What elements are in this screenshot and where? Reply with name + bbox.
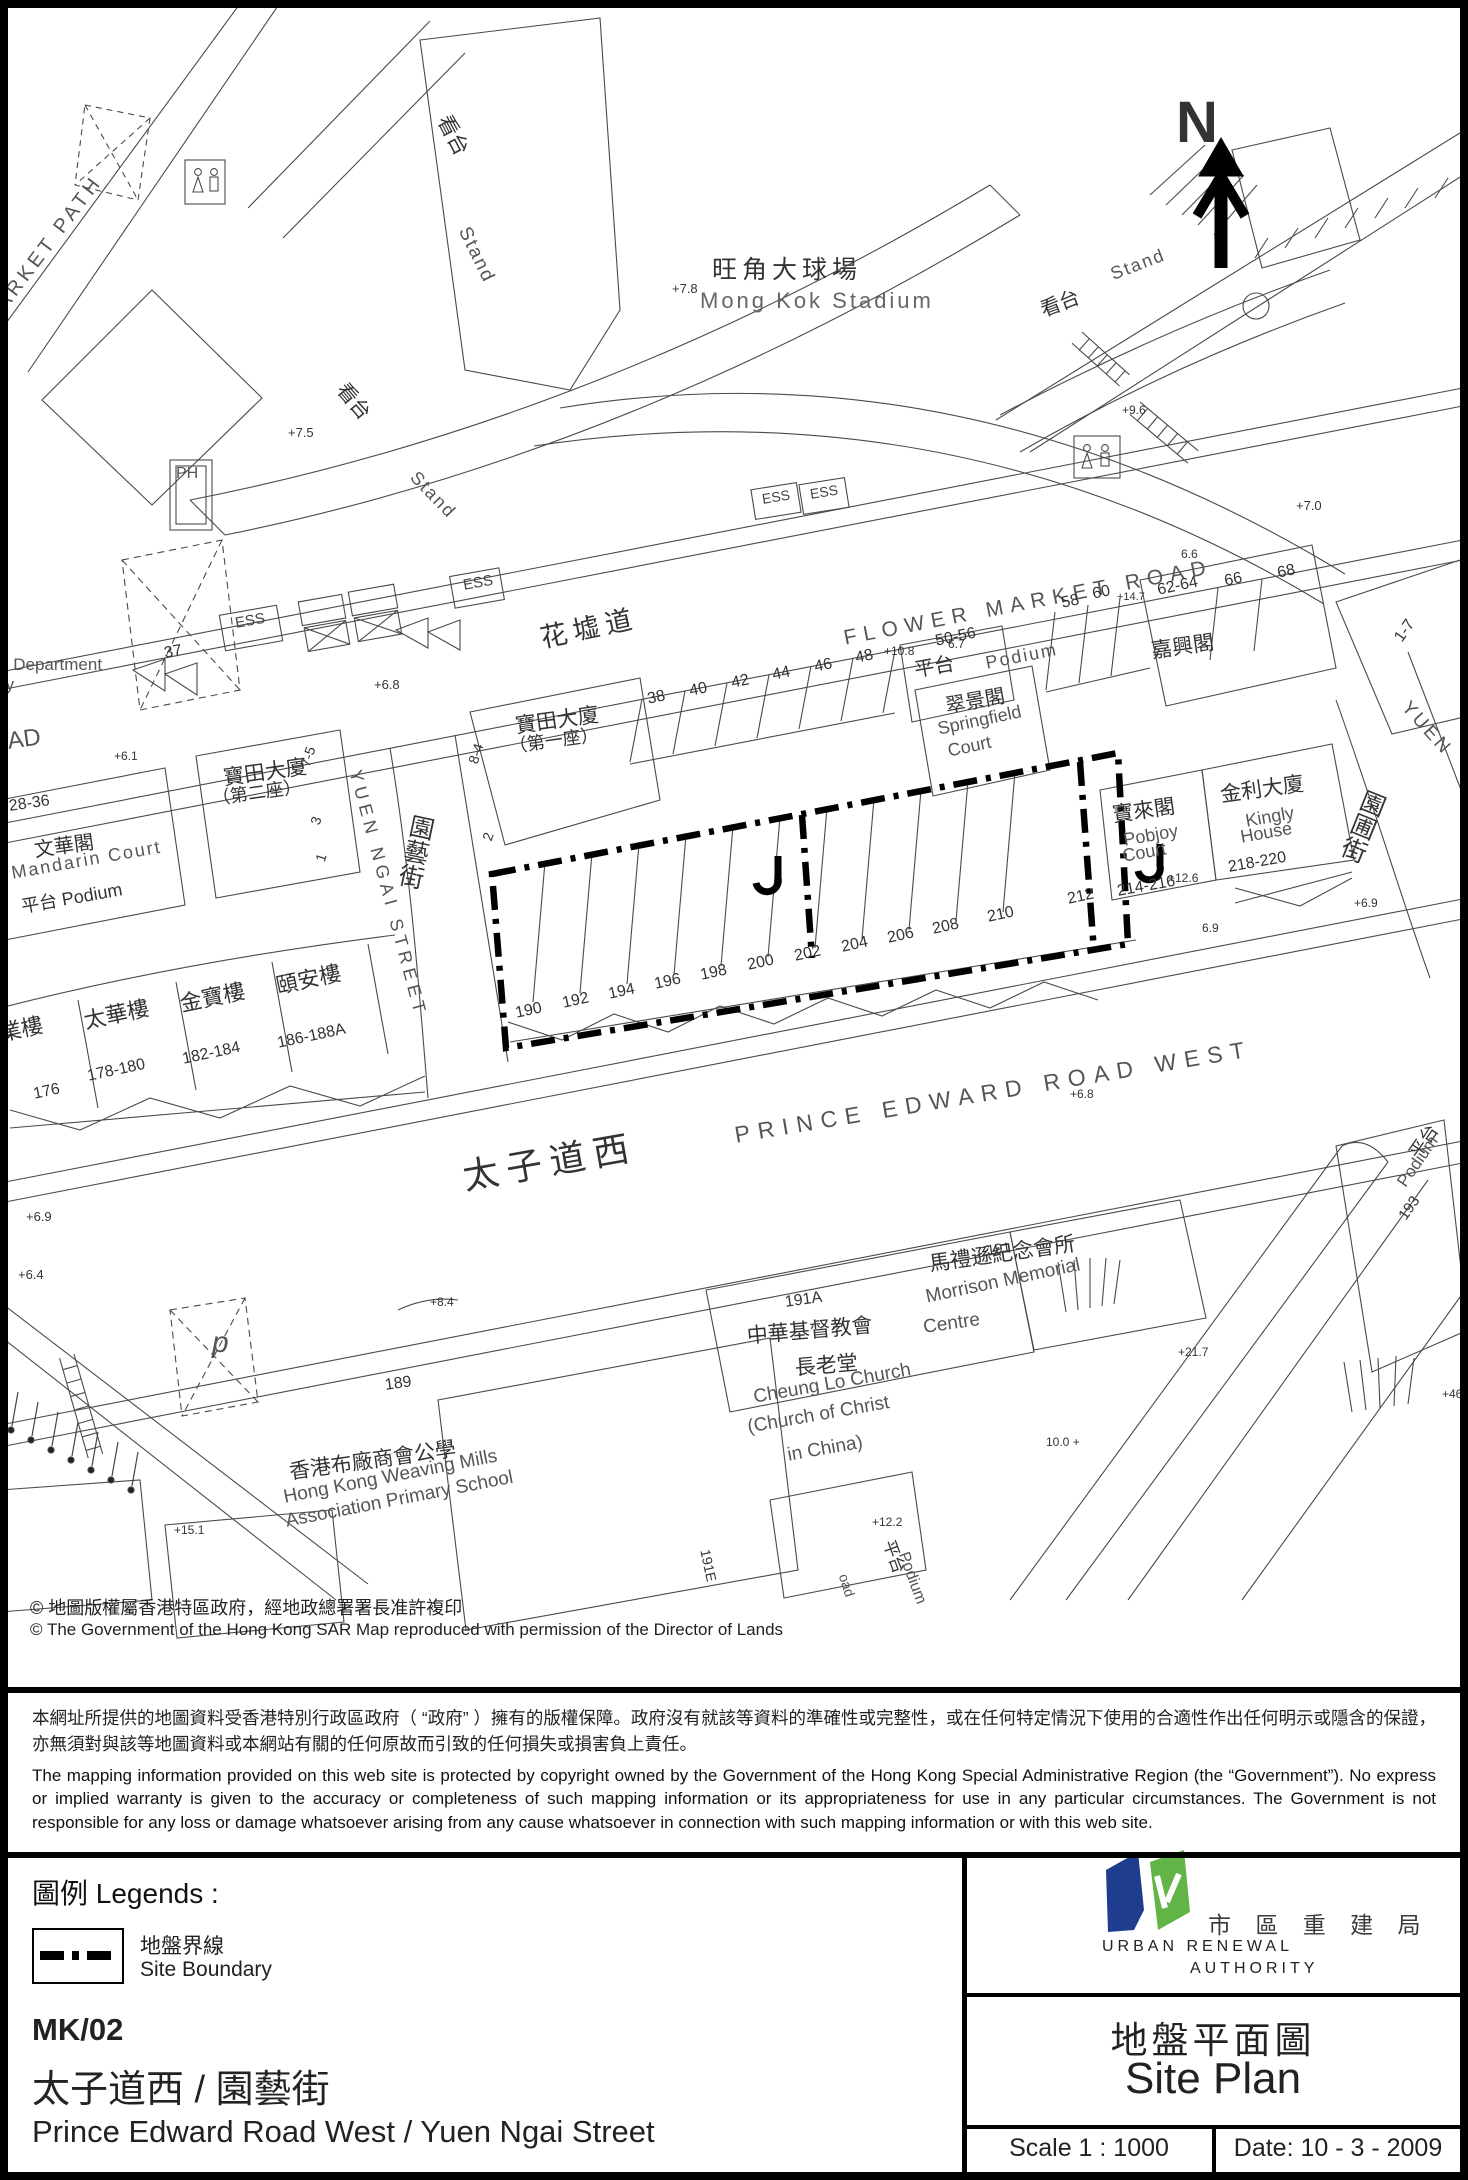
north-letter: N bbox=[1176, 94, 1218, 152]
spot-height: +15.1 bbox=[174, 1524, 204, 1536]
section-divider bbox=[8, 1687, 1460, 1693]
spot-height: +10.8 bbox=[884, 645, 914, 657]
building-outline bbox=[0, 1480, 152, 1612]
ura-name-en-line2: AUTHORITY bbox=[1190, 1960, 1318, 1978]
spot-height: +14.7 bbox=[1117, 592, 1145, 603]
lot-number: 37 bbox=[163, 643, 183, 662]
spot-height: +21.7 bbox=[1178, 1346, 1208, 1358]
legends-title: 圖例 Legends : bbox=[32, 1872, 219, 1912]
toilet-icon bbox=[1074, 436, 1120, 478]
department-label: s Department bbox=[0, 656, 102, 673]
spot-height: +12.2 bbox=[872, 1516, 902, 1528]
plan-type-en: Site Plan bbox=[966, 2054, 1460, 2104]
site-boundary bbox=[492, 753, 1160, 1048]
ura-name-zh: 市 區 重 建 局 bbox=[1208, 1906, 1430, 1940]
slope-hatch bbox=[1344, 1356, 1414, 1412]
building-outline bbox=[1336, 1120, 1468, 1372]
site-title-zh: 太子道西 / 園藝街 bbox=[32, 2058, 330, 2113]
spot-height: +7.0 bbox=[1296, 499, 1322, 512]
copyright-zh: © 地圖版權屬香港特區政府，經地政總署署長准許複印 bbox=[30, 1594, 462, 1620]
pavement-hatch bbox=[10, 1076, 425, 1130]
crosswalk bbox=[1072, 332, 1130, 386]
spot-height: +6.8 bbox=[374, 678, 400, 691]
copyright-en: © The Government of the Hong Kong SAR Ma… bbox=[30, 1620, 783, 1640]
spot-height: +6.9 bbox=[1354, 897, 1378, 909]
disclaimer: 本網址所提供的地圖資料受香港特別行政區政府（ “政府” ）擁有的版權保障。政府沒… bbox=[8, 1693, 1460, 1852]
disclaimer-zh: 本網址所提供的地圖資料受香港特別行政區政府（ “政府” ）擁有的版權保障。政府沒… bbox=[32, 1705, 1436, 1758]
ess-label: ESS bbox=[809, 483, 839, 501]
ess-label: ESS bbox=[761, 488, 791, 506]
spot-height: +12.6 bbox=[1168, 872, 1198, 884]
site-boundary-legend-icon bbox=[32, 1928, 124, 1984]
building-partitions bbox=[1046, 598, 1150, 692]
building-outline bbox=[470, 678, 660, 845]
tree-symbols bbox=[8, 1392, 138, 1493]
stadium-name-zh: 旺角大球場 bbox=[712, 258, 862, 283]
date-value: Date: 10 - 3 - 2009 bbox=[1216, 2134, 1460, 2163]
building-outline bbox=[196, 730, 360, 898]
spot-height: +6.8 bbox=[1070, 1088, 1094, 1100]
spot-height: +6.9 bbox=[26, 1210, 52, 1223]
spot-height: +9.6 bbox=[1122, 404, 1146, 416]
department-label: ry bbox=[0, 676, 14, 693]
building-outline bbox=[1232, 128, 1360, 268]
road-flower-market-path bbox=[0, 0, 465, 372]
legend-boundary-zh: 地盤界線 bbox=[140, 1930, 224, 1960]
disclaimer-en: The mapping information provided on this… bbox=[32, 1764, 1436, 1835]
spot-height: 6.9 bbox=[1202, 922, 1219, 934]
section-divider bbox=[8, 1852, 1460, 1858]
road-prince-edward-west bbox=[0, 898, 1468, 1447]
building-outline bbox=[42, 290, 262, 505]
ura-name-en-line1: URBAN RENEWAL bbox=[1102, 1938, 1293, 1956]
plan-code: MK/02 bbox=[32, 2012, 123, 2048]
parking-symbol: p bbox=[212, 1328, 229, 1358]
spot-height: 10.0 + bbox=[1046, 1436, 1080, 1448]
road-bottom-left bbox=[0, 1302, 368, 1600]
north-arrow bbox=[1197, 138, 1245, 268]
scale-date-divider bbox=[1212, 2125, 1216, 2172]
site-plan-map: MARKET PATH看台Stand+7.8旺角大球場Mong Kok Stad… bbox=[0, 0, 1468, 1687]
spot-height: +6.4 bbox=[18, 1268, 44, 1281]
ph-label: PH bbox=[176, 466, 198, 482]
toilet-icon bbox=[185, 160, 225, 204]
spot-height: +6.1 bbox=[114, 750, 138, 762]
title-block-divider bbox=[966, 1993, 1460, 1997]
footer-vertical-divider bbox=[962, 1852, 967, 2172]
stadium-name-en: Mong Kok Stadium bbox=[700, 290, 934, 312]
spot-height: +7.8 bbox=[672, 282, 698, 295]
building-partitions bbox=[630, 650, 895, 764]
scale-value: Scale 1 : 1000 bbox=[966, 2134, 1212, 2163]
legend-boundary-en: Site Boundary bbox=[140, 1958, 272, 1982]
stadium-stand bbox=[420, 18, 620, 390]
site-plan-page: MARKET PATH看台Stand+7.8旺角大球場Mong Kok Stad… bbox=[0, 0, 1468, 2180]
site-title-en: Prince Edward Road West / Yuen Ngai Stre… bbox=[32, 2114, 655, 2150]
slope-hatch bbox=[1150, 145, 1257, 235]
spot-height: +7.5 bbox=[288, 426, 314, 439]
spot-height: +46. bbox=[1442, 1388, 1466, 1400]
road-name-en: AD bbox=[6, 725, 42, 753]
spot-height: +8.4 bbox=[430, 1296, 454, 1308]
building-outline bbox=[915, 666, 1050, 796]
stadium-stand-curve bbox=[190, 185, 1020, 535]
spot-height: 6.6 bbox=[1181, 548, 1198, 560]
